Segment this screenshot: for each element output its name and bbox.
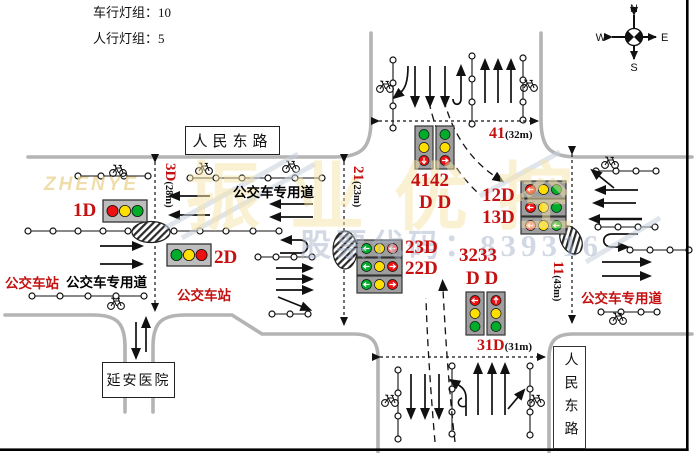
signal-1d	[103, 200, 147, 222]
bicycle-icon	[377, 81, 394, 92]
u-turn-arrow-west	[280, 240, 308, 253]
signal-2d	[167, 244, 211, 266]
u-turn-arrow-east	[604, 234, 638, 247]
signal-12d-13d	[521, 181, 566, 234]
signal-23d-22d	[357, 240, 402, 293]
diagram-canvas: N S W E	[0, 0, 696, 453]
u-turn-curl-south	[458, 398, 466, 407]
bicycle-icon	[110, 165, 127, 176]
compass-north: N	[630, 3, 638, 15]
bicycle-icon	[196, 163, 213, 174]
right-turn-arrow-north	[400, 66, 408, 93]
signal-3233	[466, 292, 505, 335]
compass-rose: N S W E	[596, 3, 669, 74]
compass-west: W	[596, 32, 607, 44]
u-turn-arrow-north	[453, 74, 461, 104]
frame-border	[0, 0, 689, 451]
compass-south: S	[630, 62, 637, 74]
intersection-diagram: N S W E 振业优控 ZHENYE 股票代码：839316 车行灯组：10 …	[0, 0, 696, 453]
bicycle-icon	[610, 313, 627, 324]
bicycle-icon	[108, 298, 125, 309]
bicycle-icon	[283, 161, 300, 172]
compass-east: E	[661, 32, 668, 44]
signal-4142	[415, 126, 454, 169]
bicycle-icon	[382, 395, 399, 406]
